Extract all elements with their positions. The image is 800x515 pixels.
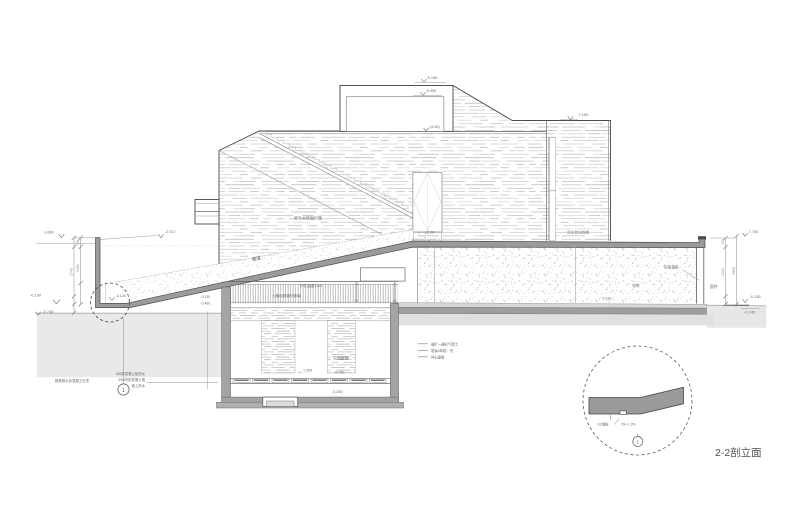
svg-text:窗件: 窗件: [710, 284, 718, 289]
svg-text:180厚混凝土板防水: 180厚混凝土板防水: [116, 371, 146, 376]
svg-text:6.450: 6.450: [427, 88, 438, 93]
svg-text:1: 1: [636, 440, 639, 446]
svg-text:-0.745: -0.745: [42, 309, 53, 314]
svg-text:-0.745: -0.745: [744, 310, 755, 315]
svg-text:7.150: 7.150: [579, 112, 590, 117]
svg-text:2745: 2745: [70, 268, 74, 276]
svg-text:-0.135: -0.135: [750, 294, 761, 299]
svg-text:墙上防水: 墙上防水: [131, 383, 145, 388]
svg-text:Ф50内的混凝土墙: Ф50内的混凝土墙: [118, 377, 145, 382]
svg-text:雨篷钢梁: 雨篷钢梁: [664, 265, 679, 270]
svg-text:车库: 车库: [632, 283, 640, 288]
svg-text:-0.130: -0.130: [116, 294, 126, 298]
svg-text:2950: 2950: [732, 267, 736, 275]
svg-text:玻钠4厚铻：形: 玻钠4厚铻：形: [431, 348, 454, 353]
svg-text:郡珠做水泥混凝土压顶: 郡珠做水泥混凝土压顶: [55, 378, 90, 383]
svg-text:1/2钢板: 1/2钢板: [597, 422, 609, 427]
svg-text:-0.750: -0.750: [334, 371, 344, 375]
svg-text:盐矿一通形气混土: 盐矿一通形气混土: [431, 341, 459, 346]
svg-text:2213: 2213: [721, 268, 725, 276]
svg-text:150: 150: [76, 240, 80, 246]
svg-text:泛水坡向找坡: 泛水坡向找坡: [567, 230, 589, 235]
svg-text:九格栓脚钢化玻璃: 九格栓脚钢化玻璃: [272, 293, 301, 298]
svg-text:-4.200: -4.200: [332, 390, 342, 394]
svg-text:护栏高度1100: 护栏高度1100: [300, 283, 322, 288]
svg-text:2%~1.0%: 2%~1.0%: [621, 423, 636, 427]
svg-text:室外木饰面栏梗: 室外木饰面栏梗: [294, 215, 322, 221]
svg-text:7.740: 7.740: [749, 229, 760, 234]
svg-text:-0.130: -0.130: [30, 292, 42, 297]
svg-text:2-2剖立面: 2-2剖立面: [715, 446, 762, 459]
svg-text:(4.45): (4.45): [430, 124, 441, 129]
svg-text:-0.460: -0.460: [201, 302, 211, 306]
svg-text:1.200: 1.200: [303, 369, 312, 373]
svg-text:3404: 3404: [76, 264, 80, 272]
svg-text:2.017: 2.017: [166, 229, 176, 234]
svg-text:±0.00: ±0.00: [425, 229, 436, 234]
svg-text:9.150: 9.150: [428, 75, 439, 80]
svg-text:下沉庭院: 下沉庭院: [332, 355, 350, 362]
svg-text:1: 1: [122, 388, 125, 394]
svg-text:150: 150: [721, 239, 725, 245]
svg-text:-1.030: -1.030: [601, 297, 611, 301]
svg-text:-0.130: -0.130: [201, 295, 211, 299]
svg-text:碎石垂層: 碎石垂層: [431, 354, 445, 359]
svg-text:1.660: 1.660: [44, 229, 55, 234]
